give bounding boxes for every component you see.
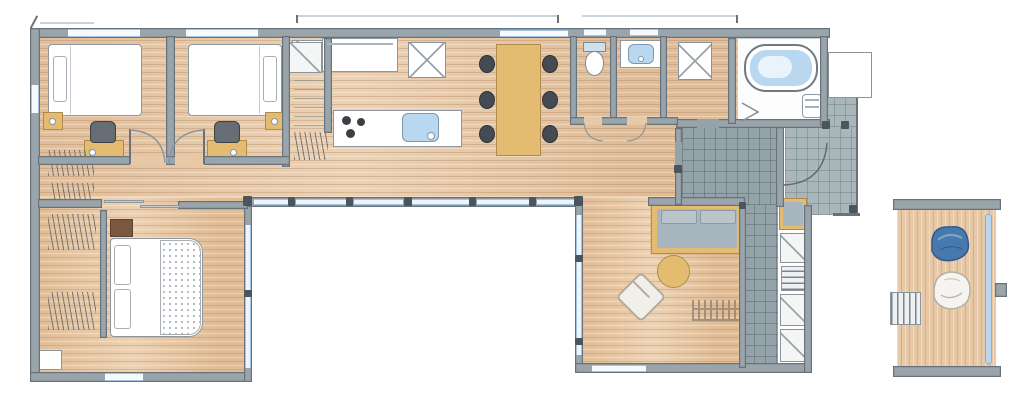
- slat-rug: [692, 300, 739, 321]
- post: [822, 121, 830, 129]
- lamp: [89, 149, 96, 156]
- sliding-door-master: [140, 205, 180, 208]
- eave-line: [40, 22, 94, 24]
- wall-wash-east: [660, 36, 667, 124]
- pillow: [114, 289, 131, 329]
- post-corner: [243, 196, 252, 206]
- eave-tick: [557, 15, 559, 23]
- pillow: [114, 245, 131, 285]
- refrigerator-x-icon: [408, 42, 446, 78]
- coffee-table-icon: [657, 255, 690, 288]
- ladder-icon: [781, 266, 805, 291]
- wardrobe-hatch: [48, 292, 96, 330]
- post: [469, 197, 476, 206]
- wall-living-east: [739, 205, 746, 368]
- post: [346, 197, 353, 206]
- window-wc: [584, 29, 606, 36]
- dining-chair: [542, 91, 558, 109]
- faucet: [638, 56, 644, 62]
- deck-steps: [890, 292, 921, 325]
- basin-lines: [805, 106, 819, 108]
- post-mullion: [575, 338, 583, 345]
- door-opening-bedroom1: [130, 156, 166, 165]
- deck-water-channel: [985, 214, 992, 364]
- window-bedroom2: [186, 29, 258, 37]
- door-opening-wash: [627, 117, 647, 125]
- bed-fold-line: [259, 46, 260, 114]
- pillow: [53, 56, 67, 102]
- wall-wc-east: [610, 36, 617, 124]
- wall-master-closet-divider: [100, 210, 107, 338]
- sofa-back-cushion: [661, 210, 697, 224]
- chair-icon: [214, 121, 240, 143]
- post-mullion: [244, 290, 252, 297]
- window-west: [31, 85, 39, 113]
- storage-closet: [780, 329, 806, 362]
- wall-master-north-a: [38, 199, 102, 208]
- counter-sill: [327, 43, 393, 45]
- pillow: [263, 56, 277, 102]
- sofa-back-cushion: [700, 210, 736, 224]
- pantry-closet: [288, 42, 322, 73]
- cooktop-icon: [342, 116, 351, 125]
- courtyard-glass-panel: [412, 199, 469, 205]
- wall-east-right-wing: [804, 205, 812, 373]
- sliding-door-master: [104, 200, 144, 203]
- lamp: [49, 118, 56, 125]
- bathtub-highlight: [758, 56, 792, 78]
- deck-top-cap: [893, 199, 1001, 210]
- deck-side-tab: [995, 283, 1007, 297]
- wall-kitchen-west: [324, 38, 332, 133]
- courtyard-glass-panel: [477, 199, 529, 205]
- post: [404, 197, 412, 206]
- faucet: [427, 132, 435, 140]
- dotted-duvet: [160, 240, 201, 335]
- bed-fold-line: [70, 46, 71, 114]
- door-opening-bedroom2: [175, 156, 204, 165]
- eave-tick: [736, 15, 738, 23]
- wall-bath-west: [728, 38, 736, 124]
- courtyard-glass-panel: [296, 199, 346, 205]
- lamp: [230, 149, 237, 156]
- dining-chair: [479, 91, 495, 109]
- deck-bottom-cap: [893, 366, 1001, 377]
- deck-planks: [897, 208, 996, 367]
- floor-tile-corridor: [743, 205, 778, 368]
- window-living-south: [592, 365, 646, 372]
- cooktop-icon: [357, 118, 365, 126]
- window-master-south: [105, 373, 143, 381]
- dining-table: [496, 44, 541, 156]
- eave-tick: [30, 15, 38, 28]
- lamp: [271, 118, 278, 125]
- post: [849, 205, 857, 213]
- dining-chair: [542, 125, 558, 143]
- chair-icon: [90, 121, 116, 143]
- window-bedroom1: [68, 29, 140, 37]
- basin-lines: [805, 99, 819, 101]
- wall-north: [30, 28, 830, 38]
- post: [529, 197, 536, 206]
- wall-master-north-b: [178, 201, 248, 209]
- door-opening-wc: [584, 117, 602, 125]
- post: [674, 165, 682, 173]
- floor-plan: [0, 0, 1024, 407]
- floor-genkan-tile: [682, 127, 778, 205]
- post: [841, 121, 849, 129]
- wall-sofa-back: [648, 197, 745, 206]
- storage-closet: [780, 294, 806, 326]
- window-washroom: [630, 29, 658, 36]
- post-mullion: [575, 255, 583, 262]
- courtyard-glass-panel: [254, 199, 290, 205]
- door-opening-entry: [777, 141, 783, 185]
- toilet-bowl: [585, 51, 604, 76]
- wardrobe-hatch: [48, 214, 96, 250]
- eave-tick: [296, 15, 298, 23]
- eave-line: [582, 15, 738, 17]
- washer-x-icon: [678, 42, 712, 80]
- porch-edge: [856, 98, 858, 215]
- door-opening-utility: [697, 119, 719, 128]
- dining-chair: [479, 125, 495, 143]
- wall-wc-west: [570, 36, 577, 124]
- cooktop-icon: [346, 129, 355, 138]
- wall-bedroom-divider: [166, 36, 175, 164]
- hanger-hatch: [294, 132, 328, 160]
- post: [288, 197, 295, 206]
- post: [739, 202, 746, 209]
- wall-bath-east: [820, 36, 828, 126]
- courtyard-glass-panel: [354, 199, 403, 205]
- dining-chair: [542, 55, 558, 73]
- headboard-cabinet: [110, 219, 133, 237]
- eave-line: [297, 15, 559, 17]
- wall-bedroom2-east: [282, 36, 290, 167]
- outdoor-unit: [828, 52, 872, 98]
- living-west-glass: [576, 215, 582, 355]
- dining-chair: [479, 55, 495, 73]
- storage-closet: [780, 233, 806, 263]
- window-dining: [500, 30, 568, 37]
- courtyard-glass-panel: [537, 199, 575, 205]
- post-corner: [574, 196, 583, 206]
